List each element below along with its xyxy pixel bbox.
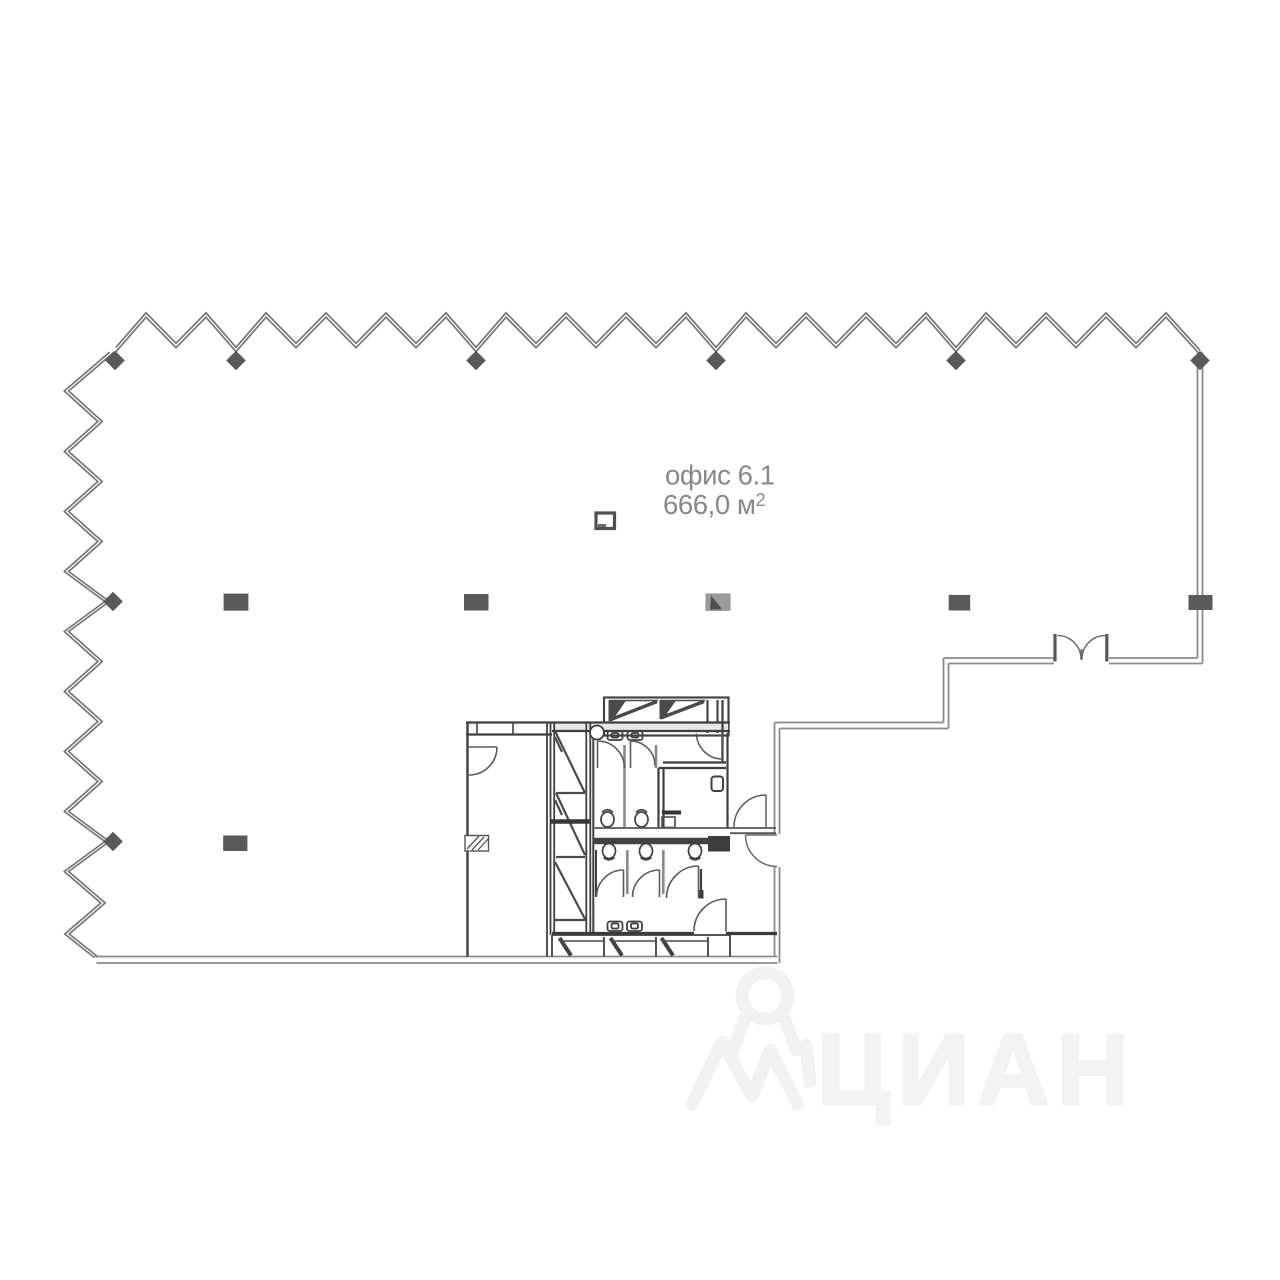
svg-text:666,0 м2: 666,0 м2 <box>663 489 766 520</box>
svg-text:ЦИАН: ЦИАН <box>817 1014 1136 1126</box>
svg-text:офис 6.1: офис 6.1 <box>665 460 775 491</box>
